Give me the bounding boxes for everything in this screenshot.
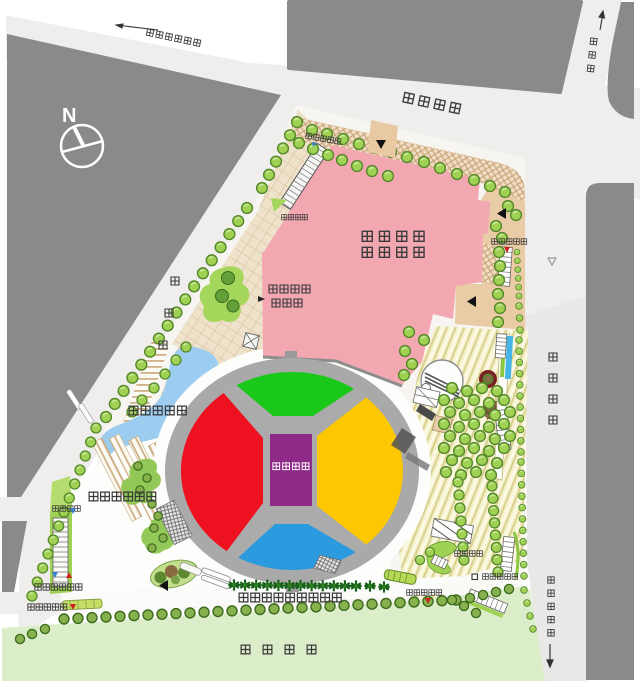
svg-text:N: N — [62, 105, 76, 127]
